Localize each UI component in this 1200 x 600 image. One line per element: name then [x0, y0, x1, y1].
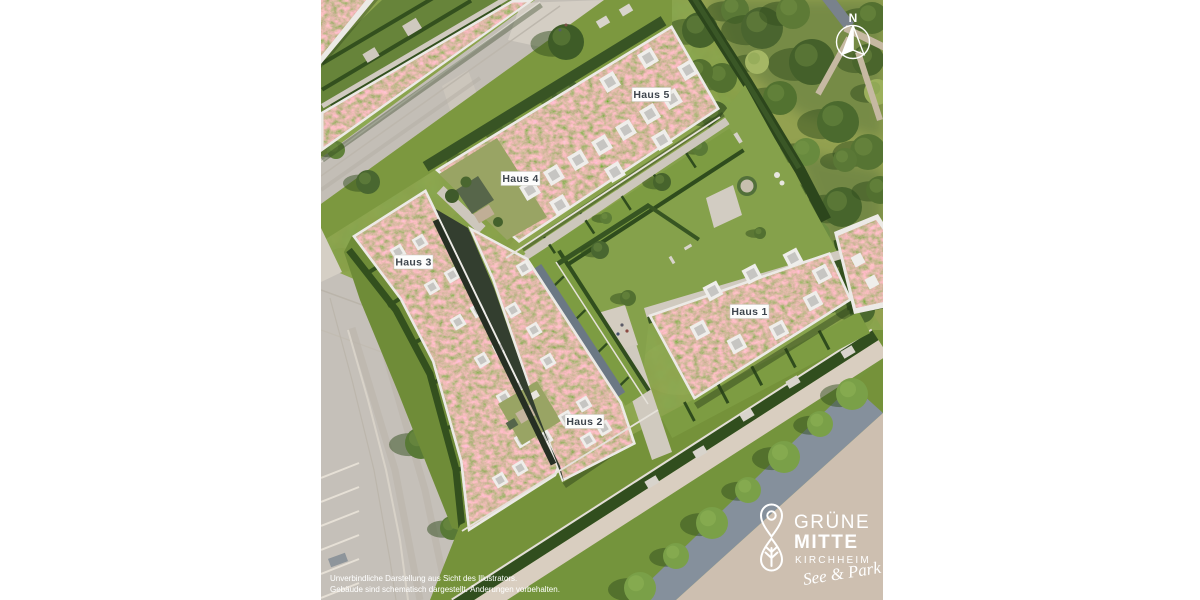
svg-text:N: N: [849, 11, 858, 25]
svg-text:Haus 2: Haus 2: [566, 416, 602, 428]
svg-text:Haus 3: Haus 3: [395, 257, 431, 269]
svg-text:Unverbindliche Darstellung aus: Unverbindliche Darstellung aus Sicht des…: [330, 574, 517, 583]
svg-text:GRÜNE: GRÜNE: [794, 512, 870, 533]
svg-text:Gebäude sind schematisch darge: Gebäude sind schematisch dargestellt. Än…: [330, 585, 560, 594]
svg-text:Haus 1: Haus 1: [731, 306, 767, 318]
svg-text:Haus 4: Haus 4: [502, 173, 538, 185]
svg-text:Haus 5: Haus 5: [633, 89, 669, 101]
svg-text:MITTE: MITTE: [794, 532, 859, 553]
